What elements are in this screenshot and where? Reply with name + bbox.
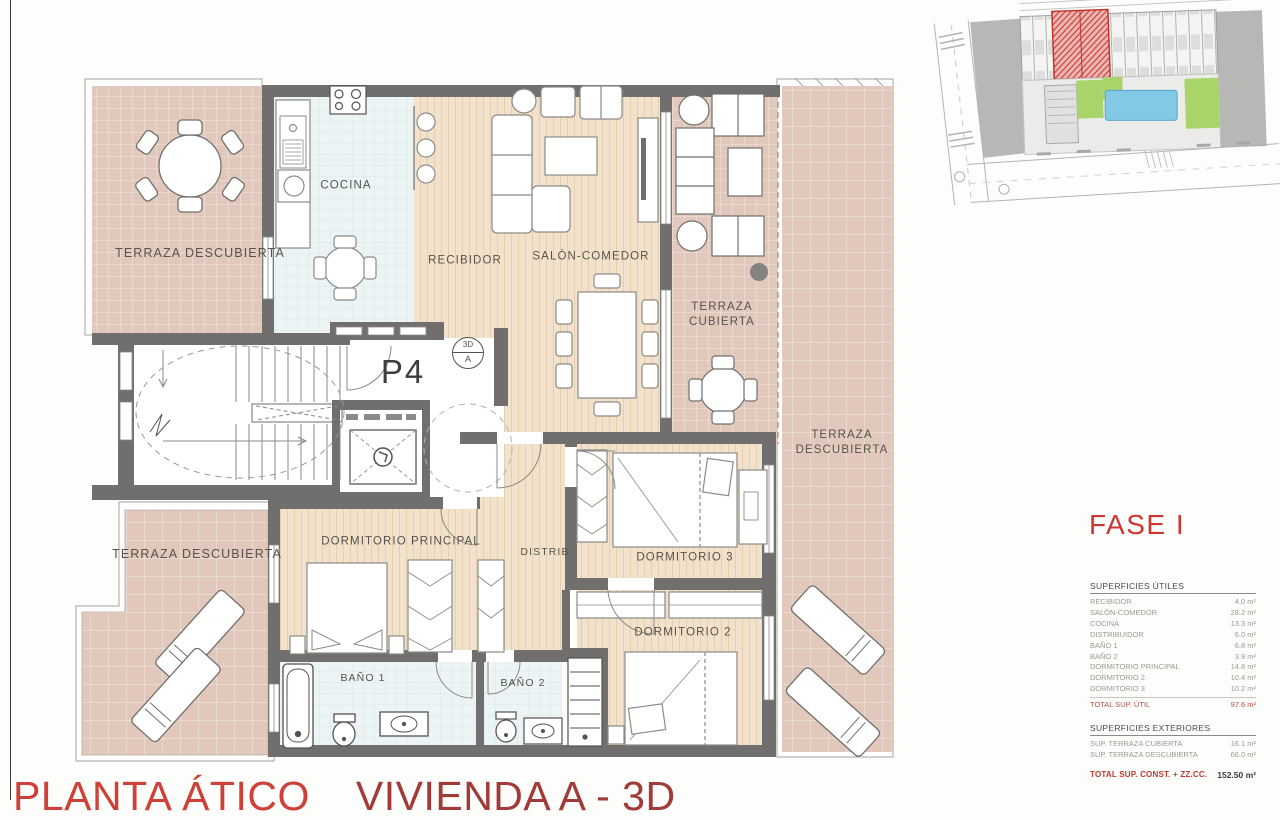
room-label-bano-1: BAÑO 1 [340,672,385,686]
phase-title: FASE I [1089,509,1185,541]
room-label-dormitorio-3: DORMITORIO 3 [636,551,733,566]
room-label-recibidor: RECIBIDOR [428,254,502,269]
surface-row-label: COCINA [1090,619,1119,630]
view-3d-marker: 3D A [452,337,484,369]
surface-row: RECIBIDOR4.0 m² [1090,597,1256,608]
surface-row: DORMITORIO 310.2 m² [1090,684,1256,695]
room-label-dormitorio-2: DORMITORIO 2 [634,626,731,641]
view-3d-marker-top: 3D [453,338,483,353]
site-plan [905,0,1280,205]
surface-total-useful: TOTAL SUP. ÚTIL97.6 m² [1090,697,1256,711]
surface-row-value: 28.2 m² [1231,608,1256,619]
surface-total-value: 97.6 m² [1231,700,1256,711]
surface-row-label: BAÑO 2 [1090,652,1118,663]
surface-row: BAÑO 16.8 m² [1090,641,1256,652]
room-label-terraza-descubierta-tl: TERRAZA DESCUBIERTA [115,245,285,261]
surface-row: DORMITORIO PRINCIPAL14.8 m² [1090,662,1256,673]
surface-row-label: DORMITORIO 3 [1090,684,1145,695]
room-label-terraza-descubierta-right: TERRAZA DESCUBIERTA [796,428,889,458]
surface-grand-total: TOTAL SUP. CONST. + ZZ.CC.152.50 m² [1090,770,1256,780]
surface-row: COCINA13.3 m² [1090,619,1256,630]
site-garden-3 [1184,78,1220,129]
room-label-salon-comedor: SALÓN-COMEDOR [532,250,649,265]
surface-row-label: BAÑO 1 [1090,641,1118,652]
surface-row-label: RECIBIDOR [1090,597,1132,608]
surface-row: DISTRIBUIDOR6.0 m² [1090,630,1256,641]
site-parcel-right [1216,10,1267,148]
surface-row-value: 6.0 m² [1235,630,1256,641]
sheet-title: PLANTA ÁTICOVIVIENDA A - 3D [13,773,676,820]
surface-row-value: 16.1 m² [1231,739,1256,750]
site-pool [1105,90,1177,120]
surface-table-header-useful: SUPERFICIES ÚTILES [1090,581,1256,594]
surface-row: BAÑO 23.9 m² [1090,652,1256,663]
surface-row-label: SALÓN-COMEDOR [1090,608,1157,619]
surface-total-label: TOTAL SUP. ÚTIL [1090,700,1150,711]
grand-total-value: 152.50 m² [1217,770,1256,780]
room-label-terraza-descubierta-bl: TERRAZA DESCUBIERTA [112,546,282,562]
surface-row-value: 4.0 m² [1235,597,1256,608]
site-plan-group [934,0,1280,205]
surface-row-label: DORMITORIO PRINCIPAL [1090,662,1180,673]
drawing-sheet: TERRAZA DESCUBIERTA COCINA RECIBIDOR SAL… [0,0,1280,800]
view-3d-marker-bottom: A [453,353,483,366]
terrace-top-left [85,79,262,335]
surface-row: DORMITORIO 210.4 m² [1090,673,1256,684]
surface-row-value: 10.4 m² [1231,673,1256,684]
room-label-distribuidor: DISTRIB. [520,546,573,560]
surface-row: SALÓN-COMEDOR28.2 m² [1090,608,1256,619]
room-label-terraza-cubierta: TERRAZA CUBIERTA [689,300,755,330]
surface-row-value: 14.8 m² [1231,662,1256,673]
grand-total-label: TOTAL SUP. CONST. + ZZ.CC. [1090,770,1207,780]
elevator [340,410,422,492]
unit-number-label: P4 [381,353,425,391]
surface-row-value: 10.2 m² [1231,684,1256,695]
sheet-title-floor: PLANTA ÁTICO [13,773,310,819]
surface-row-value: 66.0 m² [1231,750,1256,761]
surface-row-label: SUP. TERRAZA DESCUBIERTA [1090,750,1198,761]
surface-row-value: 3.9 m² [1235,652,1256,663]
surface-table: SUPERFICIES ÚTILES RECIBIDOR4.0 m² SALÓN… [1090,581,1256,780]
site-garden-1 [1076,80,1103,119]
surface-table-header-exterior: SUPERFICIES EXTERIORES [1090,723,1256,736]
site-building-strip [1020,10,1218,81]
room-label-cocina: COCINA [320,179,371,194]
surface-row: SUP. TERRAZA CUBIERTA16.1 m² [1090,739,1256,750]
surface-row-value: 13.3 m² [1231,619,1256,630]
surface-row-value: 6.8 m² [1235,641,1256,652]
sheet-title-unit: VIVIENDA A - 3D [356,773,676,819]
surface-row-label: DISTRIBUIDOR [1090,630,1144,641]
room-label-bano-2: BAÑO 2 [500,677,545,691]
surface-row: SUP. TERRAZA DESCUBIERTA66.0 m² [1090,750,1256,761]
room-label-dormitorio-principal: DORMITORIO PRINCIPAL [321,535,481,550]
surface-row-label: SUP. TERRAZA CUBIERTA [1090,739,1182,750]
surface-row-label: DORMITORIO 2 [1090,673,1145,684]
